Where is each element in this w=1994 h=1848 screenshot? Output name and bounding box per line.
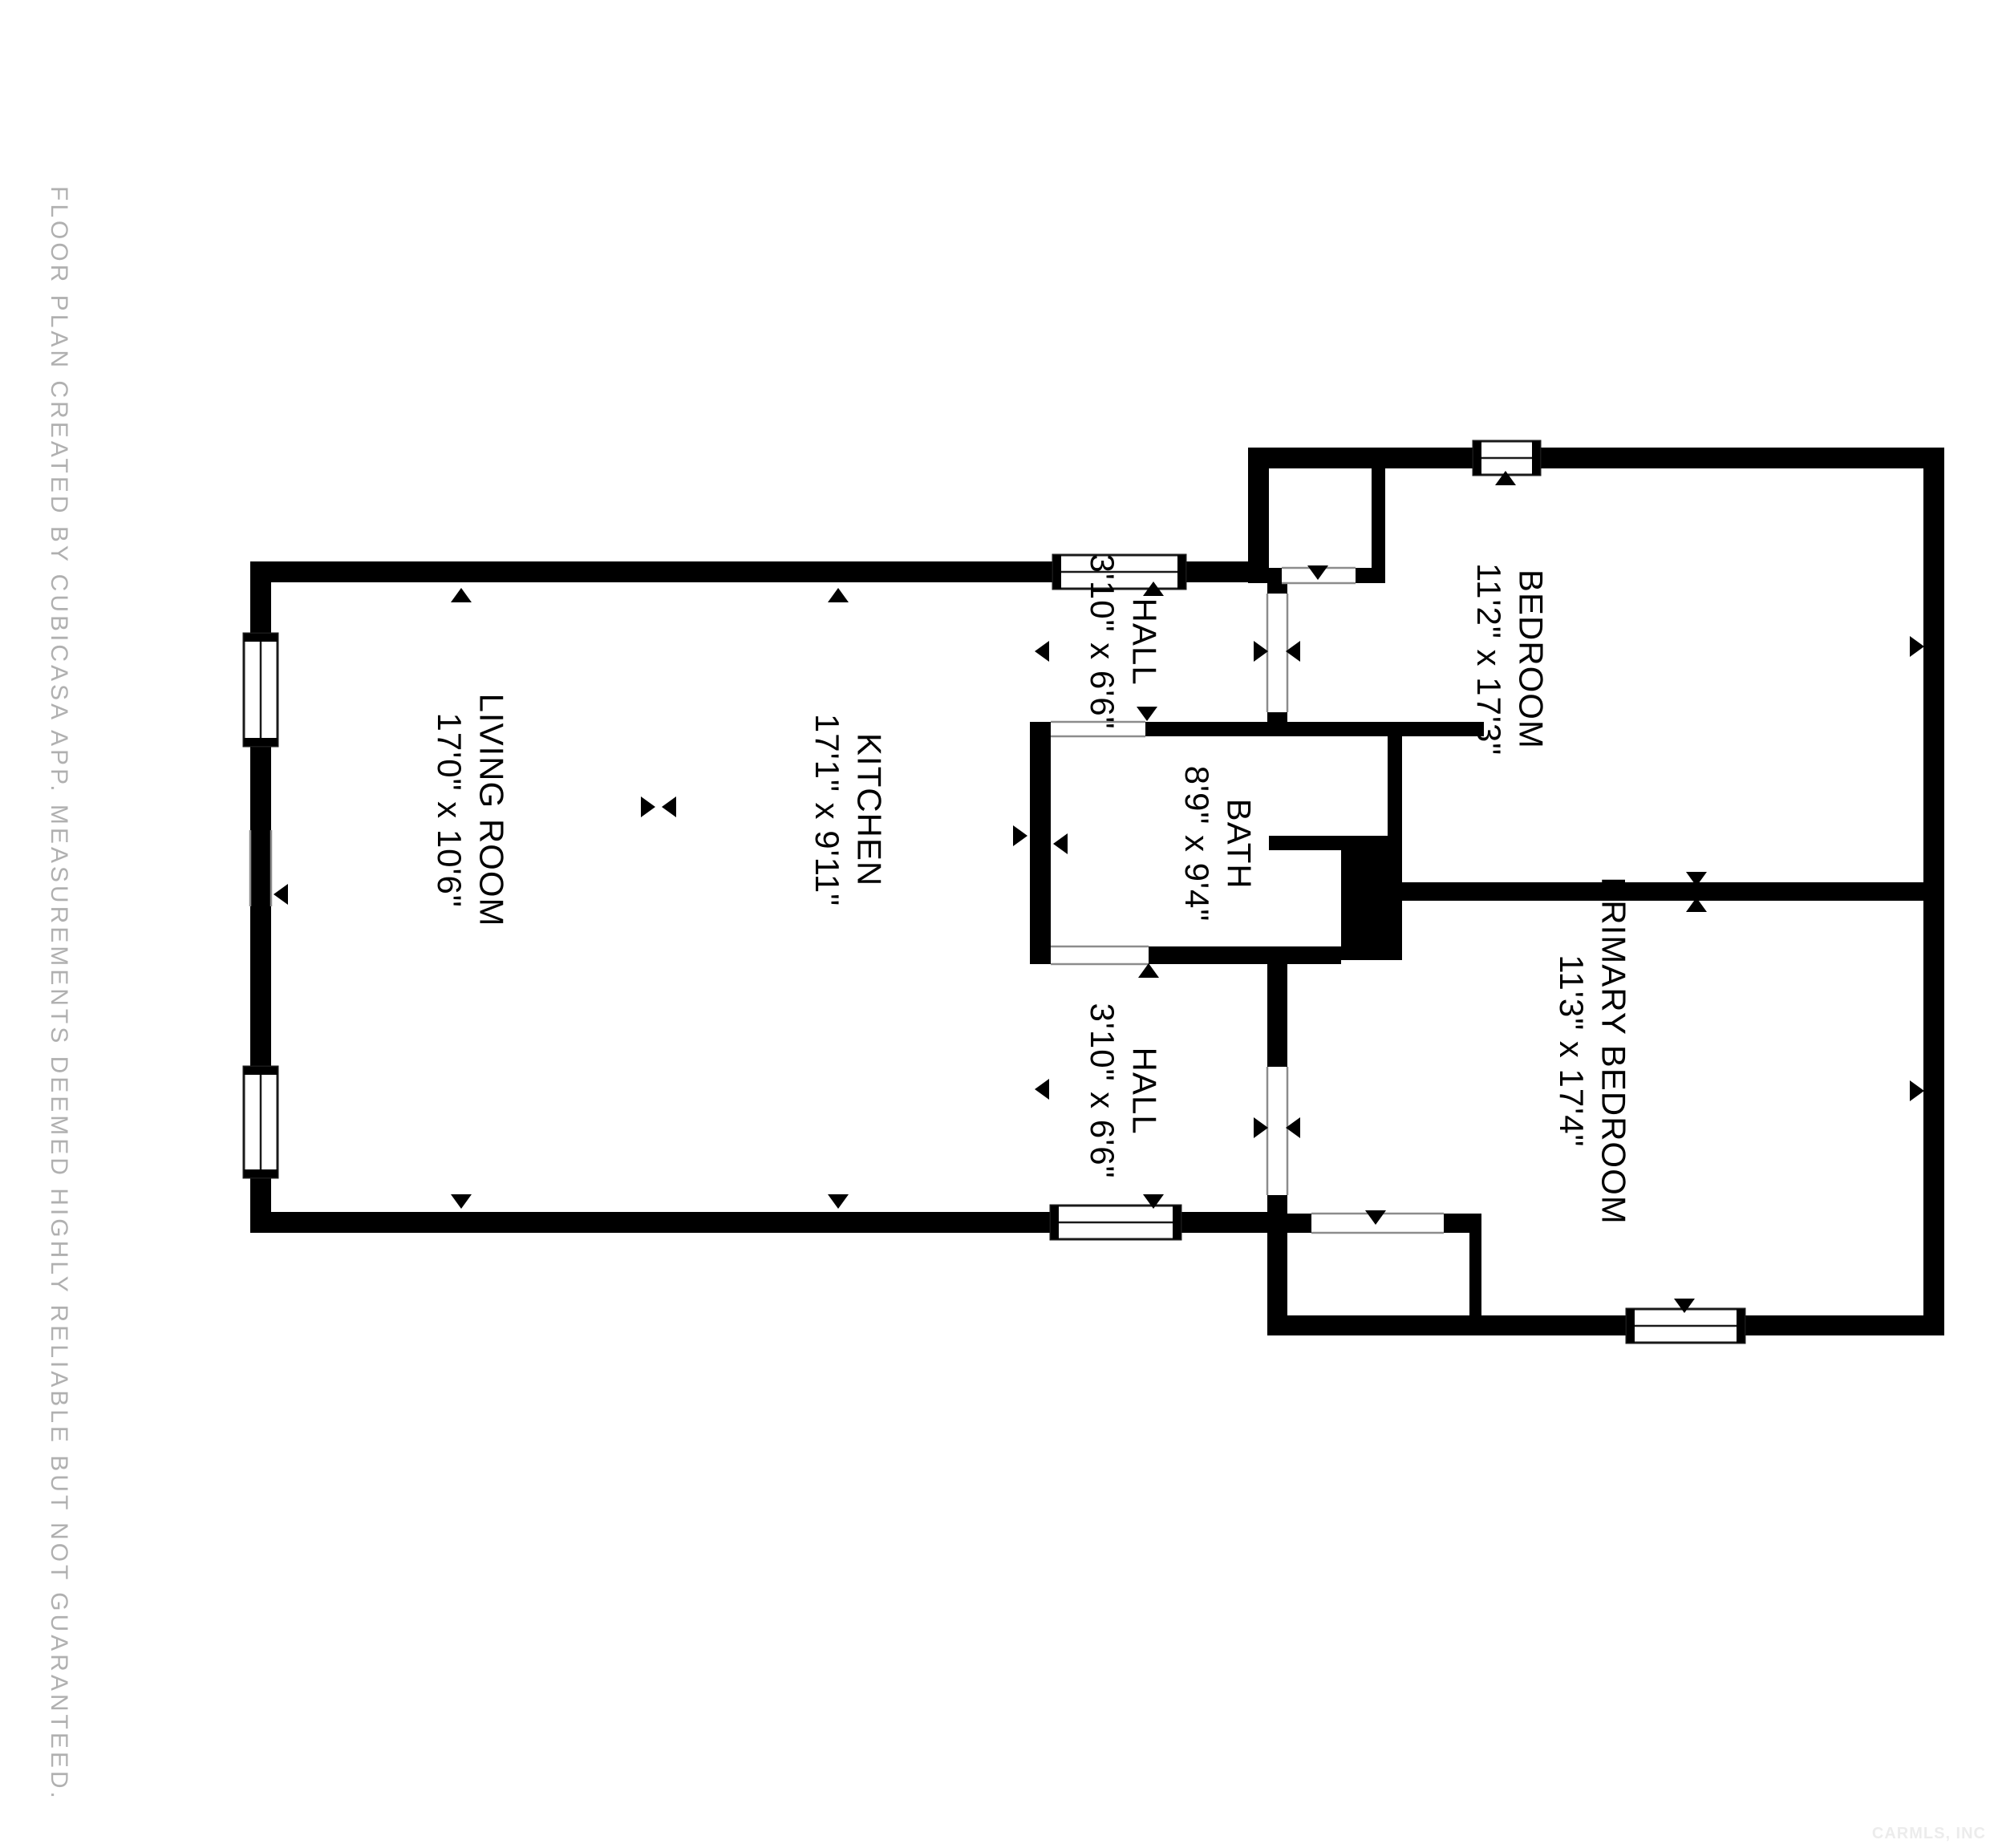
room-name: BATH (1218, 766, 1260, 922)
dimension-arrow-icon (1910, 1080, 1924, 1101)
window-jamb (244, 738, 278, 746)
room-label-primary-bedroom: PRIMARY BEDROOM 11'3" x 17'4" (1550, 877, 1635, 1225)
wall (1388, 736, 1402, 836)
window-jamb (1473, 441, 1481, 475)
wall (1248, 448, 1944, 468)
dimension-arrow-icon (1254, 1117, 1268, 1138)
dimension-arrow-icon (1254, 641, 1268, 662)
wall (1356, 568, 1372, 583)
dimension-arrow-icon (1910, 636, 1924, 657)
room-dimensions: 11'3" x 17'4" (1550, 877, 1593, 1225)
room-dimensions: 11'2" x 17'3" (1468, 563, 1510, 756)
window-jamb (244, 1169, 278, 1177)
window-jamb (1627, 1309, 1635, 1343)
wall (1248, 448, 1269, 583)
wall (1265, 722, 1484, 736)
window-jamb (1051, 1206, 1059, 1239)
room-dimensions: 8'9" x 9'4" (1176, 766, 1218, 922)
dimension-arrow-icon (828, 588, 849, 602)
wall (1402, 882, 1923, 901)
wall (1269, 568, 1282, 583)
dimension-arrow-icon (1365, 1210, 1386, 1225)
watermark-text: FLOOR PLAN CREATED BY CUBICASA APP. MEAS… (45, 186, 72, 1801)
room-dimensions: 17'0" x 10'6" (428, 693, 471, 926)
dimension-arrow-icon (274, 884, 288, 905)
window-jamb (1173, 1206, 1181, 1239)
dimension-arrow-icon (1053, 833, 1068, 854)
room-label-bath: BATH 8'9" x 9'4" (1176, 766, 1260, 922)
room-label-living-room: LIVING ROOM 17'0" x 10'6" (428, 693, 513, 926)
floor-plan-page: FLOOR PLAN CREATED BY CUBICASA APP. MEAS… (0, 0, 1994, 1848)
wall (1269, 836, 1402, 850)
room-dimensions: 3'10" x 6'6" (1081, 1003, 1124, 1179)
dimension-arrow-icon (662, 796, 676, 817)
dimension-arrow-icon (1307, 565, 1328, 580)
window-jamb (244, 1067, 278, 1075)
floor-plan-drawing (0, 0, 1994, 1848)
wall (1923, 448, 1944, 1335)
dimension-arrow-icon (1013, 825, 1027, 846)
wall (1469, 1214, 1481, 1317)
dimension-arrow-icon (451, 1194, 472, 1209)
window-jamb (244, 634, 278, 642)
dimension-arrow-icon (1035, 1079, 1049, 1100)
room-name: HALL (1123, 554, 1165, 730)
window-jamb (1532, 441, 1540, 475)
dimension-arrow-icon (1035, 641, 1049, 662)
room-label-kitchen: KITCHEN 17'1" x 9'11" (806, 714, 890, 906)
wall (1372, 468, 1385, 583)
dimension-arrow-icon (451, 588, 472, 602)
window-jamb (1053, 555, 1061, 589)
room-label-hall-bottom: HALL 3'10" x 6'6" (1081, 1003, 1165, 1179)
room-name: HALL (1123, 1003, 1165, 1179)
wall (1444, 1214, 1469, 1233)
dimension-arrow-icon (828, 1194, 849, 1209)
wall (1267, 1195, 1287, 1335)
dimension-arrow-icon (641, 796, 655, 817)
wall (1267, 964, 1287, 1067)
room-name: BEDROOM (1510, 563, 1552, 756)
window-jamb (1737, 1309, 1745, 1343)
wall (1030, 722, 1051, 964)
wall (1267, 1315, 1944, 1335)
wall (1287, 1214, 1311, 1233)
room-name: PRIMARY BEDROOM (1592, 877, 1635, 1225)
wall (1267, 583, 1287, 594)
wall (1341, 850, 1402, 960)
room-label-bedroom: BEDROOM 11'2" x 17'3" (1468, 563, 1552, 756)
dimension-arrow-icon (1138, 963, 1159, 978)
window-jamb (1177, 555, 1185, 589)
room-label-hall-top: HALL 3'10" x 6'6" (1081, 554, 1165, 730)
room-dimensions: 17'1" x 9'11" (806, 714, 849, 906)
room-name: KITCHEN (848, 714, 890, 906)
room-dimensions: 3'10" x 6'6" (1081, 554, 1124, 730)
brand-text: CARMLS, INC (1872, 1825, 1986, 1843)
room-name: LIVING ROOM (470, 693, 513, 926)
wall (1149, 946, 1341, 964)
